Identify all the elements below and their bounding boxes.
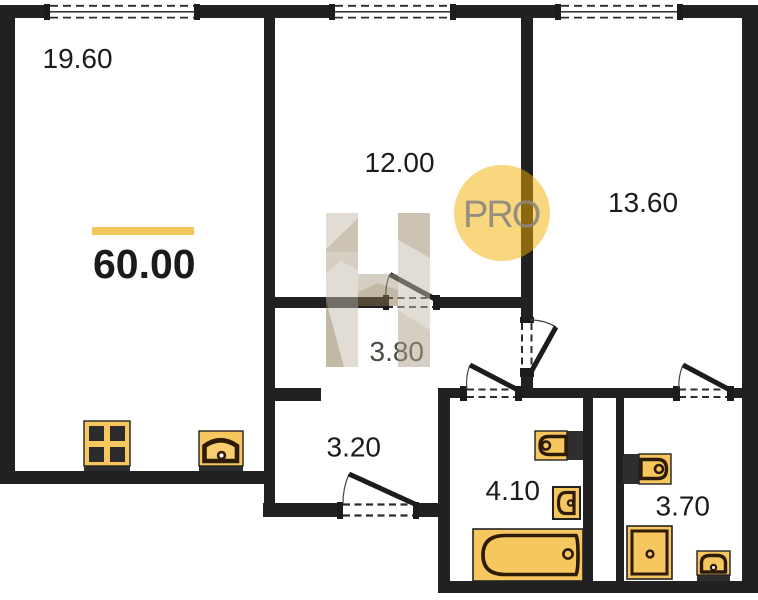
svg-text:60.00: 60.00 (93, 241, 196, 287)
svg-text:3.20: 3.20 (327, 432, 382, 463)
svg-text:3.70: 3.70 (656, 491, 711, 522)
svg-text:PRO: PRO (463, 194, 540, 236)
svg-text:4.10: 4.10 (486, 475, 541, 506)
svg-text:13.60: 13.60 (608, 187, 678, 218)
svg-text:12.00: 12.00 (365, 147, 435, 178)
svg-text:19.60: 19.60 (43, 43, 113, 74)
